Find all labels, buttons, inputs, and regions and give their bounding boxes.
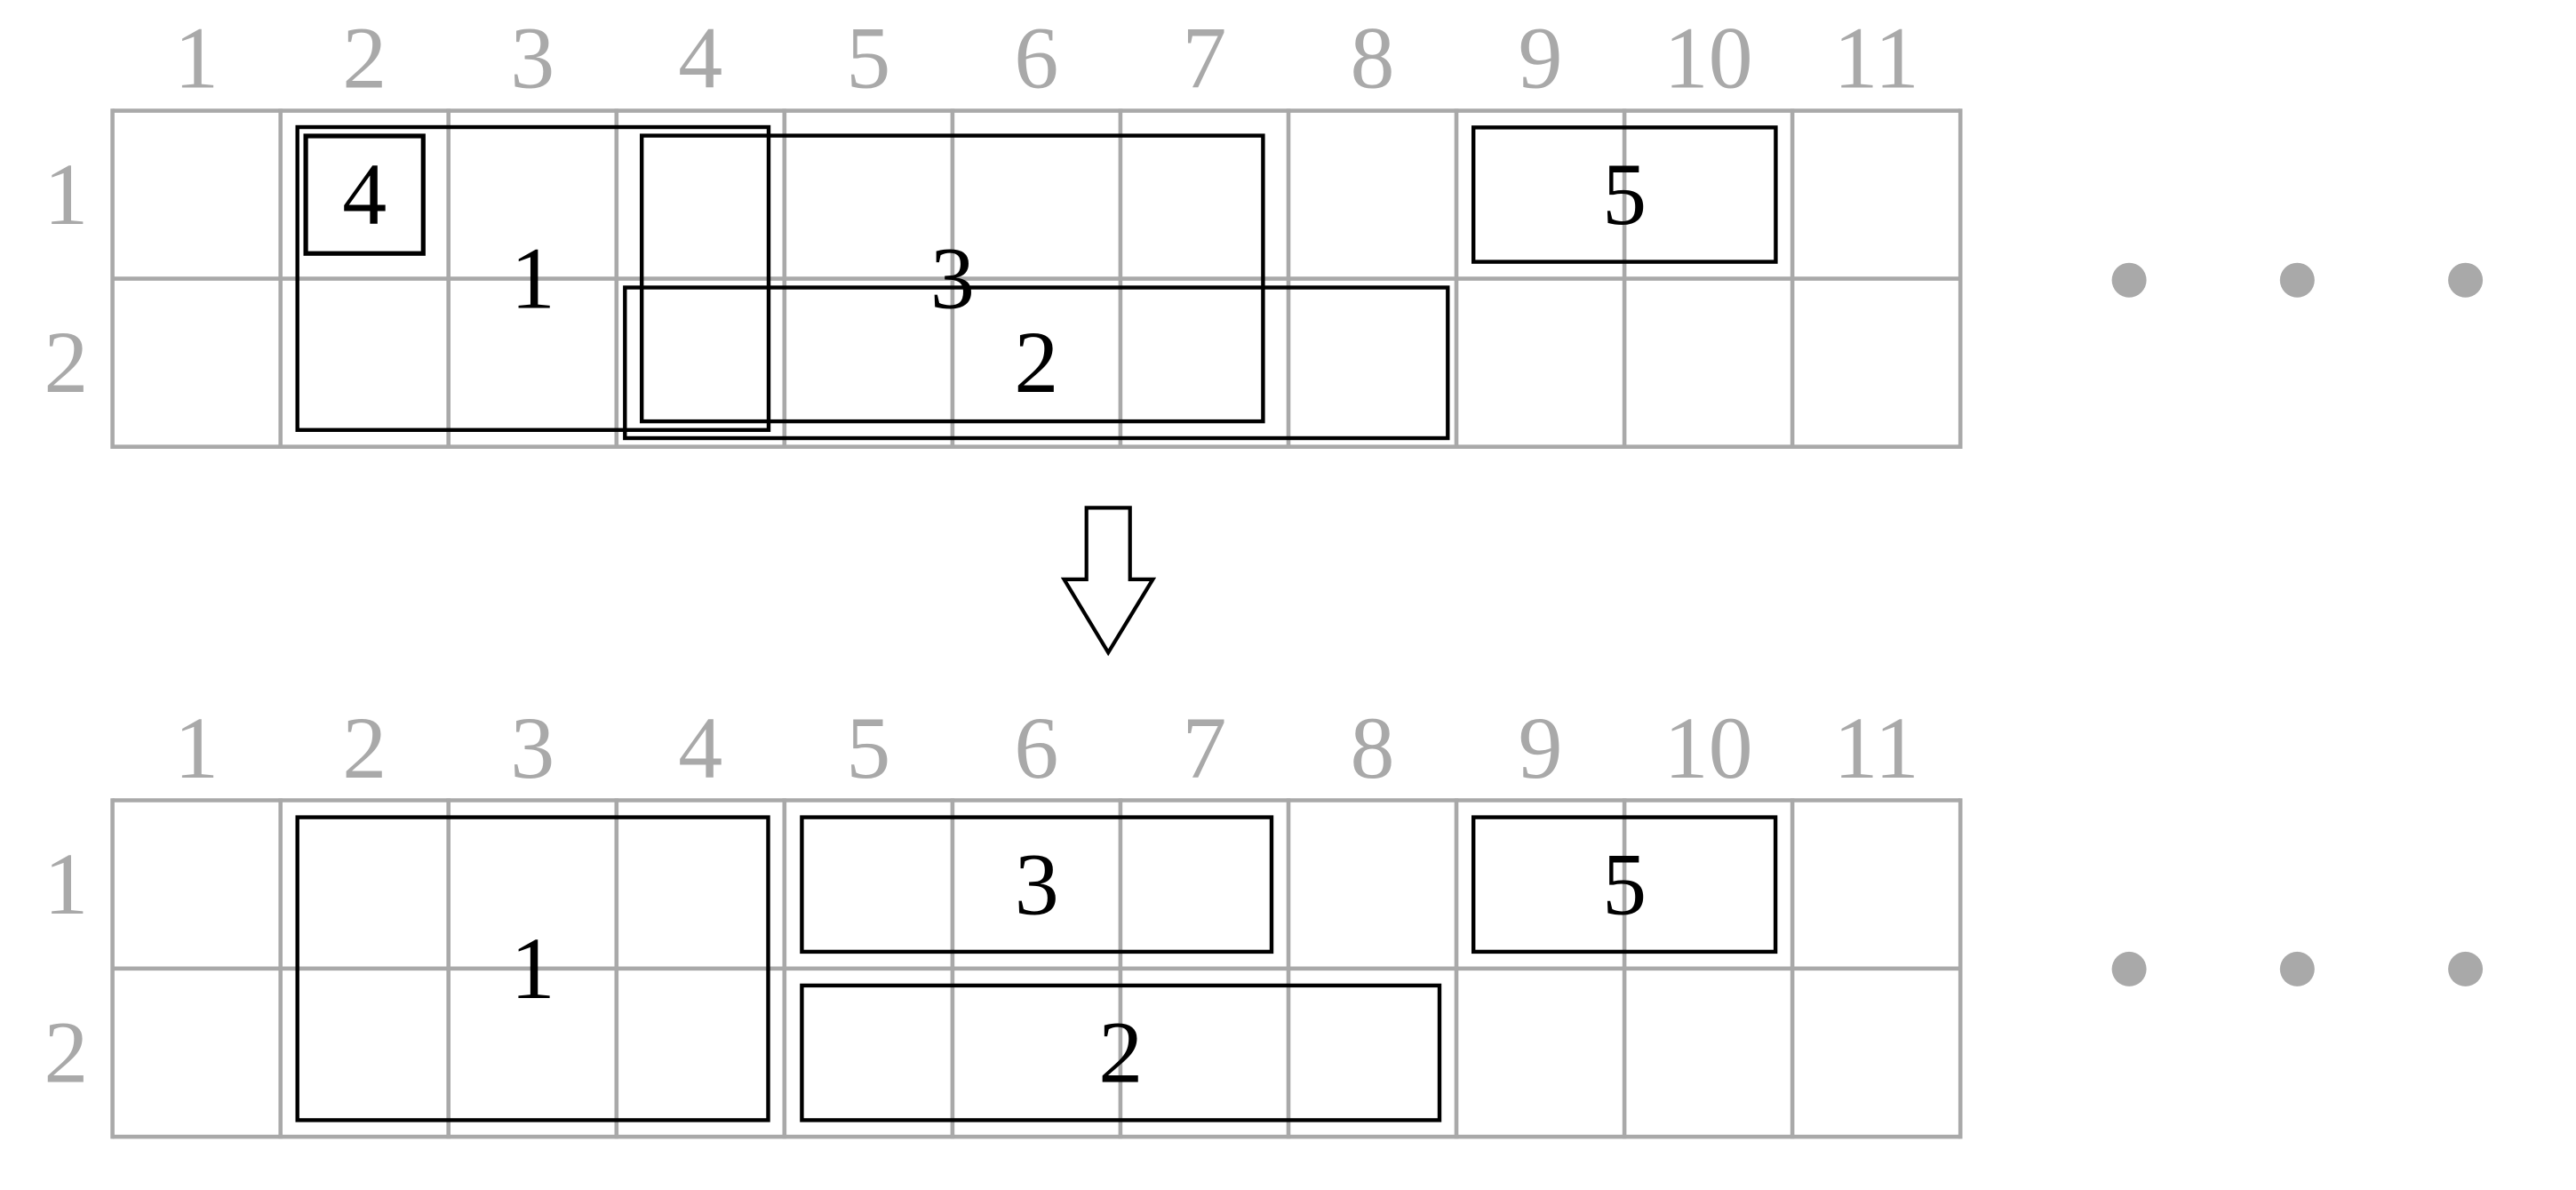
svg-text:2: 2 — [44, 313, 88, 411]
svg-text:2: 2 — [1014, 313, 1058, 411]
svg-text:11: 11 — [1833, 9, 1918, 108]
svg-text:5: 5 — [846, 9, 890, 108]
svg-text:1: 1 — [511, 228, 555, 327]
svg-text:5: 5 — [1602, 145, 1647, 244]
svg-text:5: 5 — [1602, 835, 1647, 933]
svg-text:7: 7 — [1182, 9, 1226, 108]
svg-text:8: 8 — [1351, 9, 1395, 108]
svg-text:2: 2 — [1098, 1003, 1143, 1102]
svg-text:3: 3 — [510, 699, 554, 797]
svg-text:7: 7 — [1182, 699, 1226, 797]
svg-text:3: 3 — [1015, 835, 1059, 933]
svg-text:10: 10 — [1664, 699, 1753, 797]
svg-text:2: 2 — [342, 699, 387, 797]
svg-text:4: 4 — [678, 699, 722, 797]
svg-text:1: 1 — [174, 699, 219, 797]
svg-text:9: 9 — [1519, 699, 1563, 797]
svg-text:9: 9 — [1519, 9, 1563, 108]
svg-text:3: 3 — [930, 228, 975, 327]
svg-text:1: 1 — [44, 835, 88, 933]
svg-text:4: 4 — [342, 145, 387, 244]
svg-text:11: 11 — [1833, 699, 1918, 797]
svg-text:2: 2 — [44, 1003, 88, 1102]
svg-text:1: 1 — [511, 919, 555, 1018]
svg-text:6: 6 — [1014, 9, 1058, 108]
svg-text:6: 6 — [1014, 699, 1058, 797]
svg-text:5: 5 — [846, 699, 890, 797]
svg-text:10: 10 — [1664, 9, 1753, 108]
svg-text:3: 3 — [510, 9, 554, 108]
svg-text:2: 2 — [342, 9, 387, 108]
svg-text:1: 1 — [44, 145, 88, 244]
svg-text:1: 1 — [174, 9, 219, 108]
svg-text:8: 8 — [1351, 699, 1395, 797]
svg-text:4: 4 — [678, 9, 722, 108]
